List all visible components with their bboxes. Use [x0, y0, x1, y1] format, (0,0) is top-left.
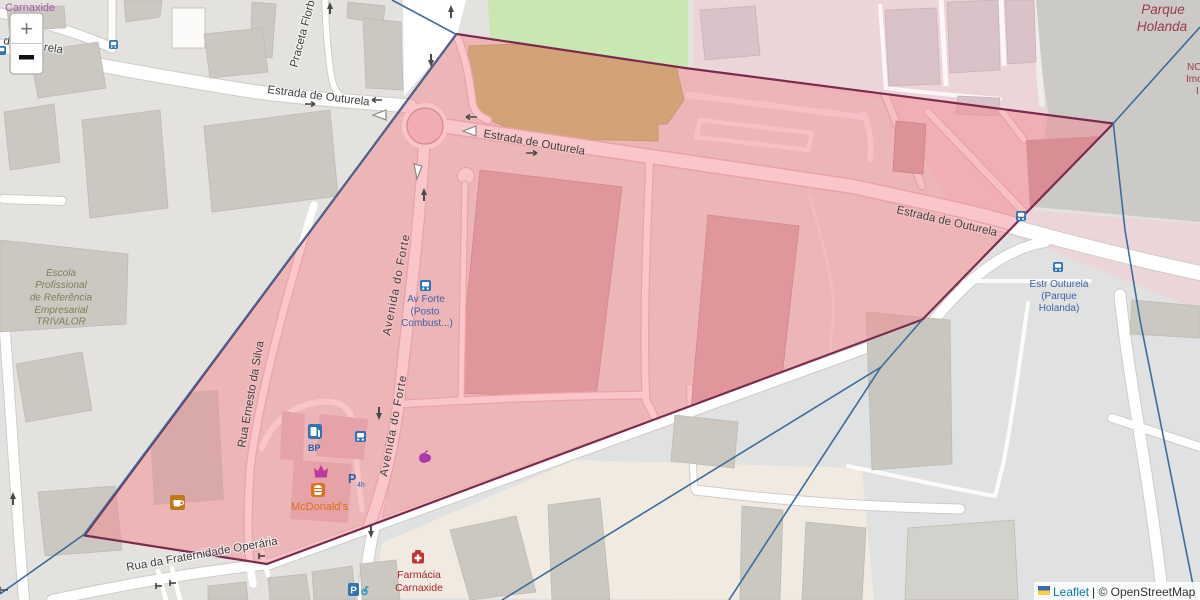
- svg-text:Leaflet: Leaflet: [1053, 585, 1090, 599]
- svg-text:McDonald's: McDonald's: [291, 501, 349, 513]
- svg-text:Imop: Imop: [1186, 74, 1200, 85]
- svg-text:4h: 4h: [357, 482, 365, 489]
- svg-text:NC: NC: [1187, 62, 1200, 73]
- svg-text:Estr Outurela: Estr Outurela: [1030, 279, 1089, 290]
- svg-text:I: I: [1196, 86, 1199, 97]
- svg-text:(Posto: (Posto: [411, 307, 440, 318]
- svg-text:BP: BP: [308, 443, 321, 453]
- svg-text:TRIVALOR: TRIVALOR: [36, 317, 85, 328]
- svg-text:Av Forte: Av Forte: [407, 294, 445, 305]
- svg-text:Escola: Escola: [46, 268, 76, 279]
- svg-text:Holanda: Holanda: [1137, 19, 1188, 34]
- svg-text:Empresarial: Empresarial: [34, 305, 88, 316]
- svg-text:+: +: [20, 16, 33, 41]
- svg-text:(Parque: (Parque: [1041, 291, 1077, 302]
- svg-text:Carnaxide: Carnaxide: [395, 582, 443, 594]
- svg-text:Farmácia: Farmácia: [397, 569, 441, 581]
- svg-text:Carnaxide: Carnaxide: [5, 2, 55, 14]
- svg-text:| © OpenStreetMap: | © OpenStreetMap: [1092, 585, 1196, 599]
- svg-text:Parque: Parque: [1141, 2, 1185, 17]
- svg-text:Holanda): Holanda): [1039, 303, 1080, 314]
- svg-text:de Referência: de Referência: [30, 293, 93, 304]
- svg-text:P: P: [348, 472, 356, 486]
- svg-text:Profissional: Profissional: [35, 280, 87, 291]
- svg-text:P: P: [350, 586, 357, 597]
- svg-text:Combust...): Combust...): [401, 318, 453, 329]
